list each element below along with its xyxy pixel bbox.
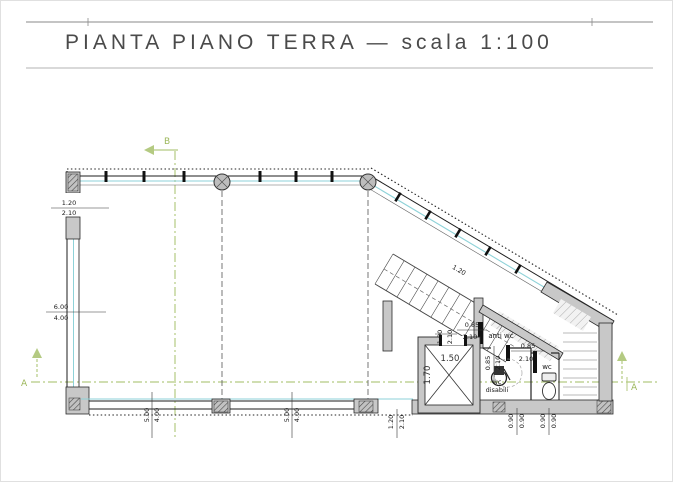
grid-lines — [222, 191, 368, 399]
dim-bay2-a: 5.00 — [283, 408, 291, 422]
dim-bay1-a: 5.00 — [143, 408, 151, 422]
section-label-b: B — [164, 137, 170, 147]
label-anti-wc: anti wc — [488, 332, 513, 340]
label-wc: wc — [542, 363, 552, 371]
wc-toilet-icon — [542, 373, 556, 400]
dim-wc-w-a: 0.90 — [539, 414, 547, 428]
dim-inner-door-w: 0.85 — [484, 356, 492, 370]
corner-stair-steps — [563, 333, 597, 395]
dim-stair-width: 1.20 — [451, 263, 468, 277]
title-rules — [26, 18, 653, 68]
section-line-a: A A — [21, 348, 660, 393]
dim-left-door-h: 2.10 — [62, 209, 76, 217]
dim-bay1-b: 4.00 — [153, 408, 161, 422]
dim-wcd-w-a: 0.90 — [507, 414, 515, 428]
dim-bottom-door-w: 1.20 — [387, 415, 395, 429]
section-line-b: B — [144, 137, 178, 439]
wc-disabili-door-leaf — [506, 345, 510, 361]
dim-inner-door-h: 2.10 — [494, 356, 502, 370]
dim-wc-door-h: 2.10 — [519, 355, 533, 363]
dim-antiwc-door-w: 0.85 — [465, 321, 479, 329]
dim-lobby-door-h: 2.10 — [446, 330, 454, 344]
drawing-sheet: PIANTA PIANO TERRA — scala 1:100 B — [0, 0, 673, 482]
east-wall — [599, 323, 612, 401]
dim-wcd-w-b: 0.90 — [518, 414, 526, 428]
dim-wc-door-w: 0.85 — [521, 342, 535, 350]
elevator-depth-label: 1.70 — [423, 366, 433, 385]
dim-bottom-door-h: 2.10 — [398, 415, 406, 429]
dim-left-wall-b: 4.00 — [54, 314, 68, 322]
dim-lobby-door-w: 1.00 — [436, 330, 444, 344]
dim-left-door-w: 1.20 — [62, 199, 76, 207]
west-wall — [65, 171, 89, 414]
section-label-a-left: A — [21, 379, 28, 389]
diagonal-mullions — [395, 193, 520, 274]
floor-plan-drawing: B A A — [1, 1, 673, 482]
elevator-shaft: 1.50 1.70 — [418, 335, 480, 413]
wc-door-leaf — [533, 351, 537, 373]
elevator-width-label: 1.50 — [441, 354, 460, 364]
dim-left-wall-a: 6.00 — [54, 303, 68, 311]
section-label-a-right: A — [631, 383, 638, 393]
dim-bay2-b: 4.00 — [293, 408, 301, 422]
dim-antiwc-door-h: 2.10 — [463, 333, 477, 341]
label-wc-disabili-2: disabili — [486, 386, 509, 394]
label-wc-disabili-1: wc — [493, 378, 502, 386]
dim-wc-w-b: 0.90 — [550, 414, 558, 428]
